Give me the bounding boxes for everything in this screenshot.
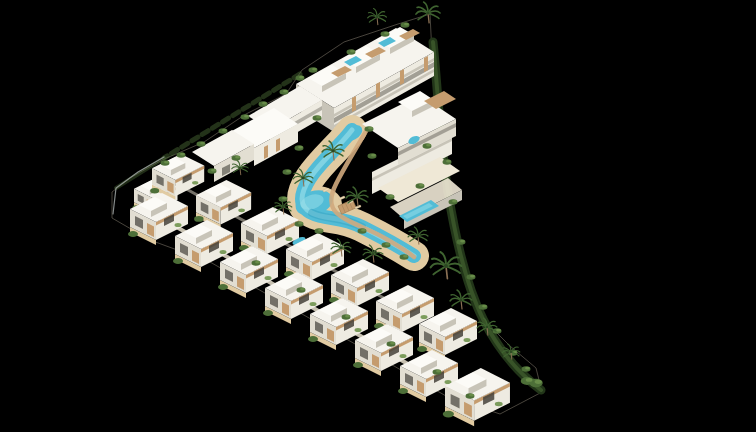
shrub-instance: [443, 159, 452, 165]
shrub-instance: [259, 101, 268, 107]
shrub-instance: [416, 183, 425, 189]
shrub-instance: [295, 221, 304, 227]
shrub-instance: [219, 128, 228, 134]
shrub-instance: [365, 126, 374, 132]
shrub-instance: [208, 168, 217, 174]
shrub-instance: [423, 143, 432, 149]
shrub-instance: [252, 260, 261, 266]
shrub-instance: [521, 377, 534, 385]
shrub-instance: [401, 22, 410, 28]
shrub-instance: [232, 155, 241, 161]
shrub-instance: [297, 287, 306, 293]
shrub-instance: [381, 31, 390, 37]
shrub-instance: [400, 254, 409, 260]
shrub-instance: [280, 89, 289, 95]
shrub-instance: [161, 160, 170, 166]
shrub-instance: [309, 67, 318, 73]
shrub-instance: [449, 199, 458, 205]
site-plan-render: [0, 0, 756, 432]
shrub-instance: [382, 242, 391, 248]
shrub-instance: [296, 75, 305, 81]
shrub-instance: [467, 274, 476, 280]
shrub-instance: [479, 304, 488, 310]
shrub-instance: [241, 114, 250, 120]
shrub-instance: [433, 369, 442, 375]
shrub-instance: [457, 239, 466, 245]
shrub-instance: [315, 228, 324, 234]
shrub-instance: [387, 341, 396, 347]
shrub-instance: [295, 145, 304, 151]
architectural-render-stage: [0, 0, 756, 432]
shrub-instance: [342, 314, 351, 320]
shrub-instance: [386, 194, 395, 200]
shrub-instance: [493, 328, 502, 334]
shrub-instance: [522, 366, 531, 372]
shrub-instance: [466, 393, 475, 399]
shrub-instance: [358, 228, 367, 234]
shrub-instance: [347, 49, 356, 55]
shrub-instance: [368, 153, 377, 159]
shrub-instance: [313, 115, 322, 121]
shrub-instance: [283, 169, 292, 175]
shrub-instance: [177, 152, 186, 158]
shrub-instance: [197, 141, 206, 147]
